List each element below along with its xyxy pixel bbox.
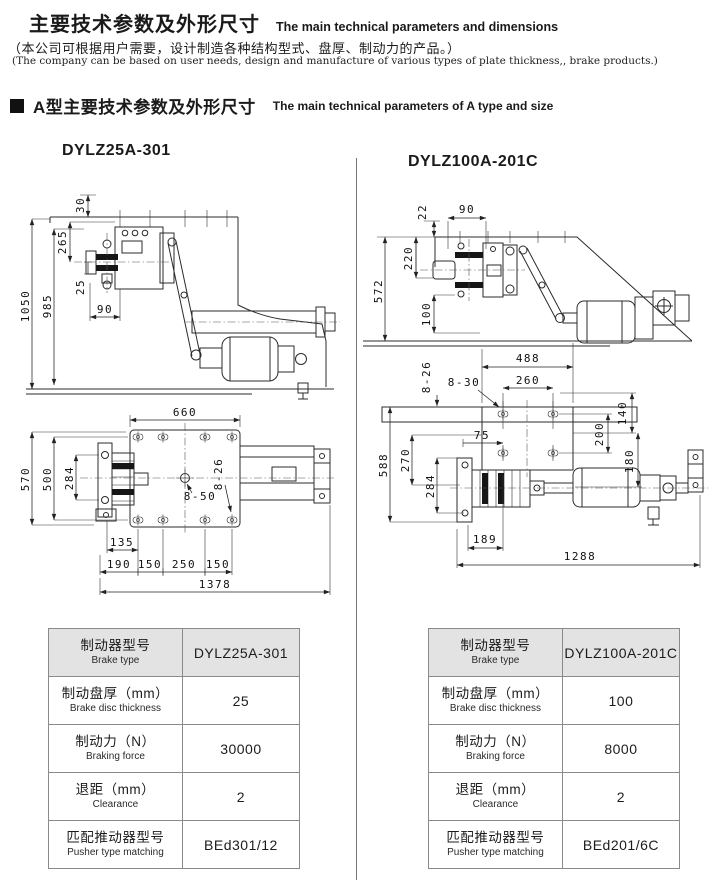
- pusher-value: BEd301/12: [182, 821, 299, 869]
- table-row: 制动盘厚（mm） Brake disc thickness 25: [49, 677, 300, 725]
- table-row: 退距（mm） Clearance 2: [49, 773, 300, 821]
- braking-force-label-cell: 制动力（N） Braking force: [429, 725, 563, 773]
- dim-100: 100: [420, 302, 433, 326]
- table-row: 退距（mm） Clearance 2: [429, 773, 680, 821]
- dim-284: 284: [424, 474, 437, 498]
- table-row: 制动盘厚（mm） Brake disc thickness 100: [429, 677, 680, 725]
- dim-270: 270: [399, 448, 412, 472]
- dim-180: 180: [623, 449, 636, 473]
- braking-force-value: 30000: [182, 725, 299, 773]
- label-zh: 制动盘厚（mm）: [429, 686, 562, 703]
- disc-thickness-value: 25: [182, 677, 299, 725]
- dim-75: 75: [474, 429, 490, 442]
- dim-25: 25: [74, 279, 87, 295]
- label-zh: 制动器型号: [429, 638, 562, 655]
- dim-985: 985: [41, 294, 54, 318]
- dim-660: 660: [173, 406, 197, 419]
- dim-8-26: 8-26: [420, 361, 433, 394]
- table-row: 制动力（N） Braking force 8000: [429, 725, 680, 773]
- dim-190: 190: [107, 558, 131, 571]
- pusher-label-cell: 匹配推动器型号 Pusher type matching: [429, 821, 563, 869]
- dim-150a: 150: [138, 558, 162, 571]
- plan-view-drawing: [80, 423, 334, 535]
- dim-140: 140: [616, 401, 629, 425]
- label-zh: 制动力（N）: [429, 734, 562, 751]
- braking-force-label-cell: 制动力（N） Braking force: [49, 725, 183, 773]
- label-en: Clearance: [429, 799, 562, 811]
- dim-22: 22: [416, 204, 429, 220]
- label-en: Brake type: [429, 655, 562, 667]
- table-row: 制动器型号 Brake type DYLZ25A-301: [49, 629, 300, 677]
- label-zh: 退距（mm）: [429, 782, 562, 799]
- section-title-zh: A型主要技术参数及外形尺寸: [33, 93, 256, 118]
- table-row: 制动器型号 Brake type DYLZ100A-201C: [429, 629, 680, 677]
- spec-table-right: 制动器型号 Brake type DYLZ100A-201C 制动盘厚（mm） …: [428, 628, 680, 869]
- brake-type-label-cell: 制动器型号 Brake type: [49, 629, 183, 677]
- dim-8-30: 8-30: [448, 376, 481, 389]
- dim-90: 90: [459, 203, 475, 216]
- drawing-dylz25a-301: 1050 985 30 265 25 90: [22, 143, 352, 603]
- clearance-label-cell: 退距（mm） Clearance: [49, 773, 183, 821]
- dim-8-26: 8-26: [212, 458, 225, 491]
- table-row: 制动力（N） Braking force 30000: [49, 725, 300, 773]
- dim-8-50: 8-50: [184, 490, 217, 503]
- section-marker-icon: [10, 99, 24, 113]
- dim-1378: 1378: [199, 578, 232, 591]
- dim-588: 588: [377, 453, 390, 477]
- label-zh: 匹配推动器型号: [49, 830, 182, 847]
- dim-260: 260: [516, 374, 540, 387]
- side-view-drawing: [26, 210, 340, 399]
- section-title-en: The main technical parameters of A type …: [273, 99, 554, 113]
- brake-type-value: DYLZ25A-301: [182, 629, 299, 677]
- label-zh: 制动器型号: [49, 638, 182, 655]
- label-en: Braking force: [49, 751, 182, 763]
- dim-90: 90: [97, 303, 113, 316]
- label-zh: 匹配推动器型号: [429, 830, 562, 847]
- page-title-zh: 主要技术参数及外形尺寸: [29, 8, 260, 37]
- dim-135: 135: [110, 536, 134, 549]
- dim-1288: 1288: [564, 550, 597, 563]
- label-en: Brake disc thickness: [49, 703, 182, 715]
- column-divider: [356, 158, 357, 880]
- dim-150b: 150: [206, 558, 230, 571]
- brake-type-value: DYLZ100A-201C: [562, 629, 679, 677]
- drawing-dylz100a-201c: 22 90 572 220 100 488: [360, 145, 712, 605]
- label-en: Braking force: [429, 751, 562, 763]
- brake-type-label-cell: 制动器型号 Brake type: [429, 629, 563, 677]
- dim-284: 284: [63, 466, 76, 490]
- plan-view-dimensions: 8-26 260 8-30 75 140 200 180 588 270 284…: [377, 361, 700, 568]
- dim-265: 265: [56, 230, 69, 254]
- plan-view-drawing: [382, 400, 708, 525]
- label-zh: 制动力（N）: [49, 734, 182, 751]
- pusher-value: BEd201/6C: [562, 821, 679, 869]
- page-header: 主要技术参数及外形尺寸 The main technical parameter…: [29, 8, 558, 37]
- dim-570: 570: [19, 467, 32, 491]
- disc-thickness-label-cell: 制动盘厚（mm） Brake disc thickness: [429, 677, 563, 725]
- dim-1050: 1050: [19, 290, 32, 323]
- section-header: A型主要技术参数及外形尺寸 The main technical paramet…: [10, 93, 553, 118]
- dim-500: 500: [41, 467, 54, 491]
- label-en: Clearance: [49, 799, 182, 811]
- label-zh: 制动盘厚（mm）: [49, 686, 182, 703]
- braking-force-value: 8000: [562, 725, 679, 773]
- disc-thickness-value: 100: [562, 677, 679, 725]
- dim-189: 189: [473, 533, 497, 546]
- disc-thickness-label-cell: 制动盘厚（mm） Brake disc thickness: [49, 677, 183, 725]
- label-en: Pusher type matching: [429, 847, 562, 859]
- table-row: 匹配推动器型号 Pusher type matching BEd301/12: [49, 821, 300, 869]
- label-en: Brake type: [49, 655, 182, 667]
- dim-200: 200: [593, 422, 606, 446]
- table-row: 匹配推动器型号 Pusher type matching BEd201/6C: [429, 821, 680, 869]
- label-en: Brake disc thickness: [429, 703, 562, 715]
- dim-250: 250: [172, 558, 196, 571]
- clearance-label-cell: 退距（mm） Clearance: [429, 773, 563, 821]
- dim-488: 488: [516, 352, 540, 365]
- pusher-label-cell: 匹配推动器型号 Pusher type matching: [49, 821, 183, 869]
- page-title-en: The main technical parameters and dimens…: [276, 20, 558, 34]
- label-zh: 退距（mm）: [49, 782, 182, 799]
- dim-220: 220: [402, 246, 415, 270]
- spec-table-left: 制动器型号 Brake type DYLZ25A-301 制动盘厚（mm） Br…: [48, 628, 300, 869]
- dim-572: 572: [372, 279, 385, 303]
- side-view-dimensions: 1050 985 30 265 25 90: [19, 195, 120, 389]
- clearance-value: 2: [562, 773, 679, 821]
- label-en: Pusher type matching: [49, 847, 182, 859]
- clearance-value: 2: [182, 773, 299, 821]
- side-view-dimensions: 22 90 572 220 100 488: [372, 203, 573, 403]
- dim-30: 30: [74, 197, 87, 213]
- note-en: (The company can be based on user needs,…: [12, 55, 658, 67]
- catalog-page: 主要技术参数及外形尺寸 The main technical parameter…: [0, 0, 720, 889]
